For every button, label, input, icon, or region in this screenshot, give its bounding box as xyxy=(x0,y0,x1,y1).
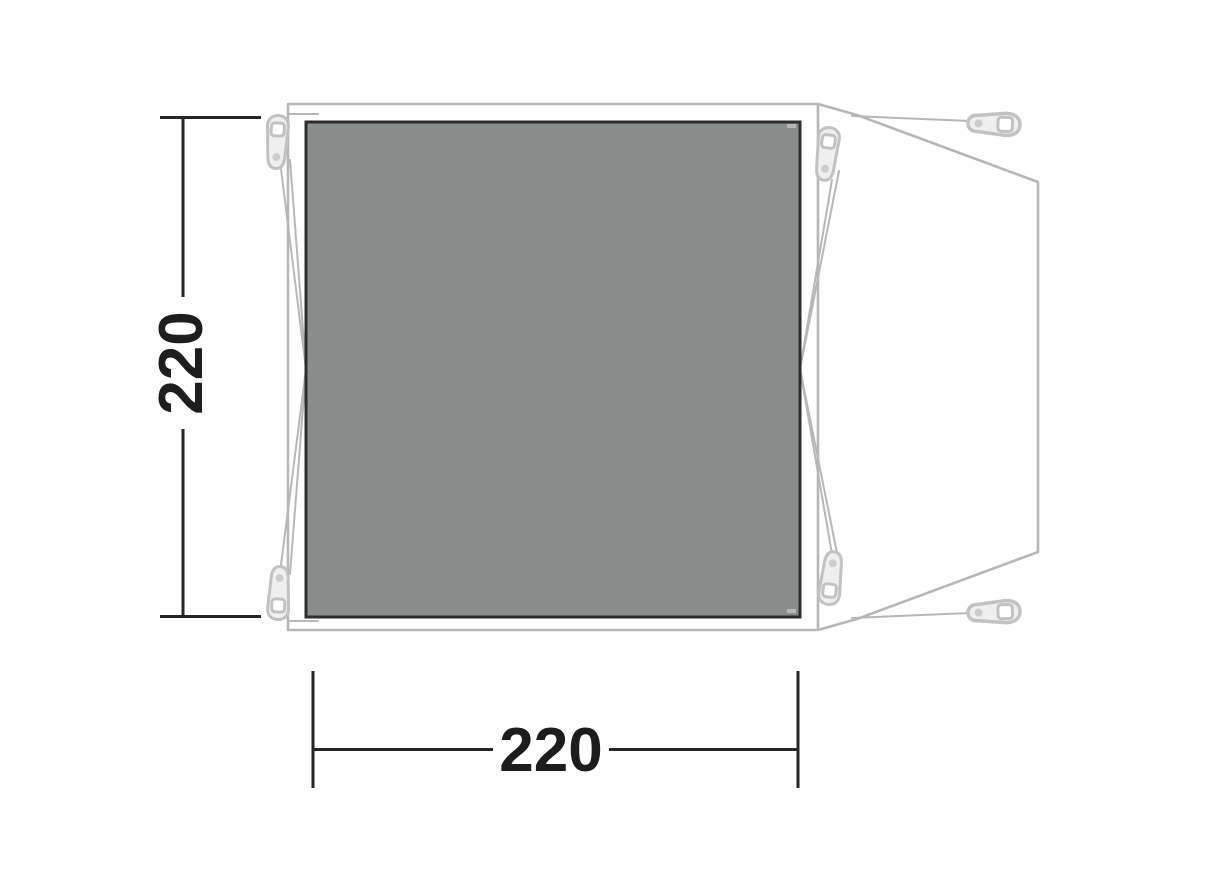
width-dimension-label: 220 xyxy=(499,716,602,785)
porch-outline xyxy=(818,104,1038,630)
tent-footprint-diagram: 220 220 xyxy=(0,0,1230,872)
groundsheet-notch-bottom-right xyxy=(787,609,796,613)
tension-lines-right xyxy=(800,171,839,563)
diagram-canvas: 220 220 xyxy=(0,0,1230,872)
depth-dimension: 220 xyxy=(147,118,261,617)
depth-dimension-label: 220 xyxy=(147,311,216,414)
corner-tab-icon-bottom-right xyxy=(817,551,844,606)
peg-icon-bottom-right xyxy=(968,600,1021,624)
groundsheet-notch-top-right xyxy=(787,124,796,128)
groundsheet xyxy=(306,122,800,617)
tension-lines-left xyxy=(281,160,306,574)
width-dimension: 220 xyxy=(313,671,798,788)
corner-tab-icon-bottom-left xyxy=(267,566,291,620)
corner-tab-icon-top-right xyxy=(813,126,840,181)
corner-tab-icon-top-left xyxy=(265,115,289,169)
peg-icon-top-right xyxy=(968,112,1021,136)
